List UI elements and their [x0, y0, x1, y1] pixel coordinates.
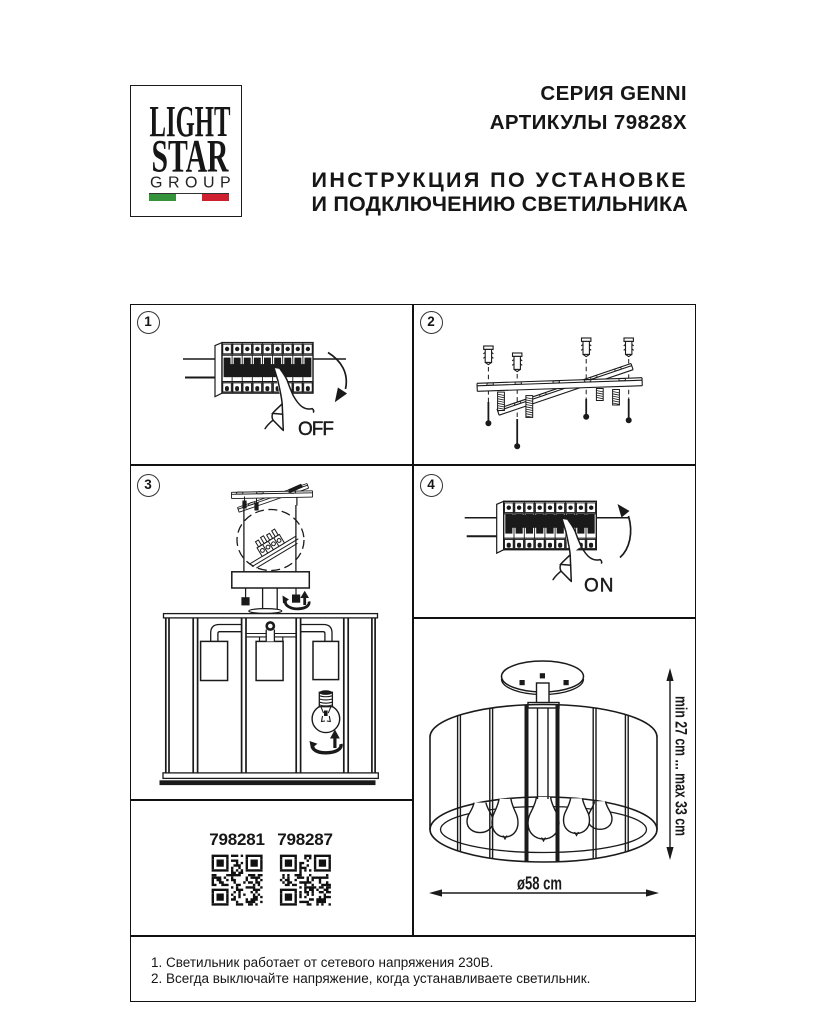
svg-text:OFF: OFF [298, 419, 334, 440]
svg-text:ON: ON [584, 576, 614, 597]
svg-text:min 27 cm ... max 33 cm: min 27 cm ... max 33 cm [672, 696, 690, 836]
svg-text:ø58 cm: ø58 cm [517, 874, 562, 894]
